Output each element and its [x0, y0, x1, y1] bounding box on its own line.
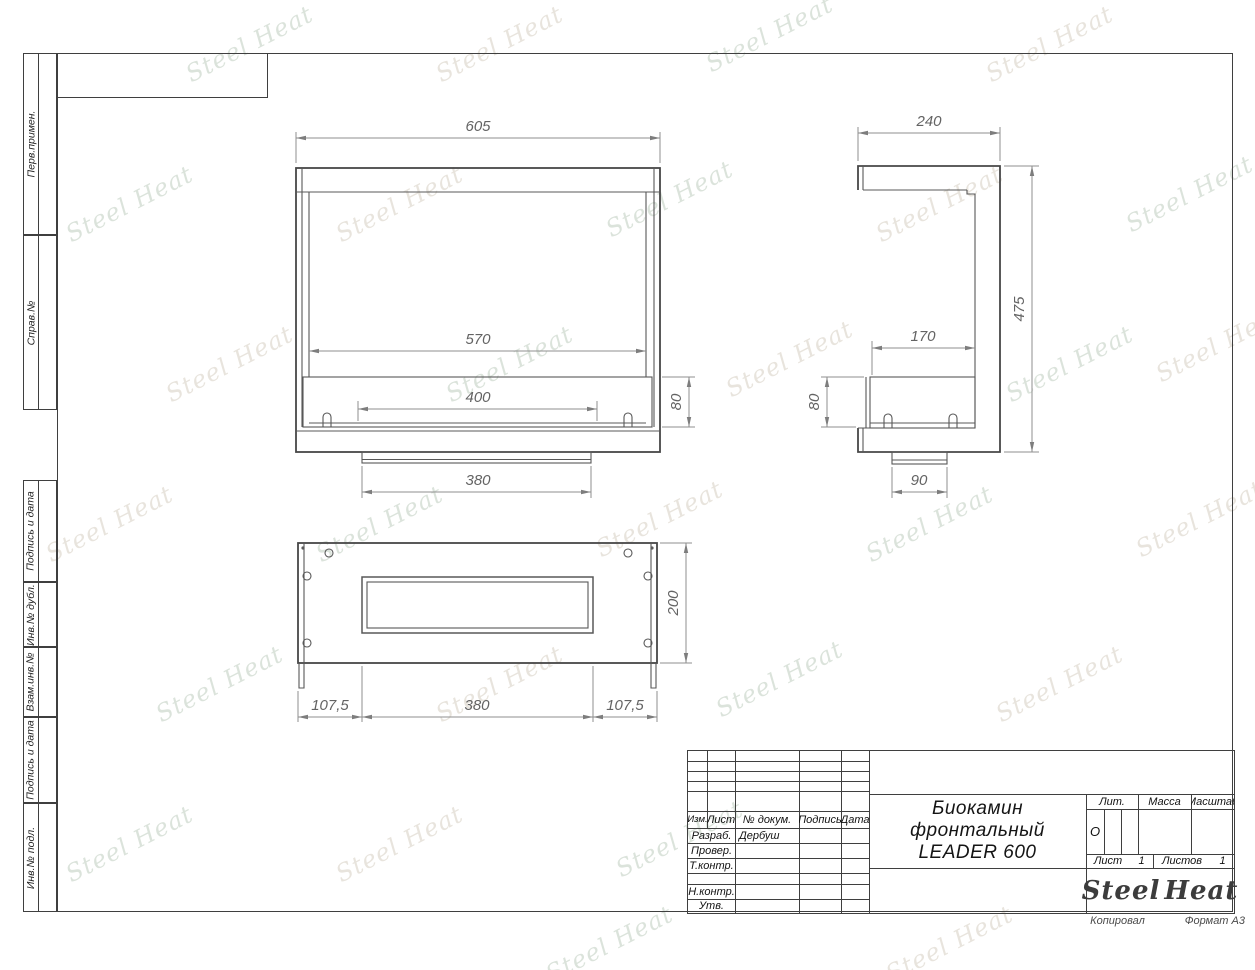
- strip-box-podpis-data-1: Подпись и дата: [23, 480, 57, 582]
- strip-label: Взам.инв.№: [25, 652, 37, 711]
- strip-box-inv-dubl: Инв.№ дубл.: [23, 582, 57, 647]
- grid-line: [688, 873, 869, 874]
- strip-divider: [38, 648, 39, 716]
- strip-box-perv-primen: Перв.примен.: [23, 53, 57, 235]
- row-tkontr-label: Т.контр.: [688, 858, 735, 873]
- row-razrab-value: Дербуш: [735, 828, 803, 843]
- row-nkontr-label: Н.контр.: [688, 884, 735, 899]
- strip-label: Подпись и дата: [25, 491, 37, 570]
- row-utv-label: Утв.: [688, 899, 735, 913]
- sheets-value: 1: [1211, 854, 1234, 868]
- strip-label: Инв.№ подл.: [25, 826, 37, 888]
- drawing-sheet: Steel Heat Steel Heat Steel Heat Steel H…: [0, 0, 1255, 970]
- sheets-label: Листов: [1153, 854, 1211, 868]
- title-block: Изм. Лист № докум. Подпись Дата Разраб. …: [687, 750, 1235, 914]
- lit-label: Лит.: [1086, 794, 1138, 809]
- strip-divider: [38, 583, 39, 646]
- strip-divider: [38, 54, 39, 234]
- grid-line: [688, 791, 869, 792]
- col-doc: № докум.: [735, 811, 799, 828]
- logo-steel-text: Steel: [1082, 876, 1161, 906]
- strip-divider: [38, 481, 39, 581]
- col-list: Лист: [707, 811, 735, 828]
- top-left-box: [57, 53, 268, 98]
- strip-divider: [38, 236, 39, 409]
- lit-value: О: [1086, 809, 1104, 854]
- strip-box-podpis-data-2: Подпись и дата: [23, 717, 57, 803]
- strip-label: Подпись и дата: [25, 720, 37, 799]
- grid-line: [688, 781, 869, 782]
- strip-box-inv-podl: Инв.№ подл.: [23, 803, 57, 912]
- steelheat-logo: Steel Heat: [1086, 868, 1234, 913]
- grid-line: [841, 751, 842, 913]
- grid-line: [1121, 809, 1122, 854]
- strip-divider: [38, 804, 39, 911]
- col-izm: Изм.: [688, 811, 707, 828]
- strip-divider: [38, 718, 39, 802]
- masshtab-label: Масштаб: [1191, 794, 1234, 809]
- grid-line: [688, 761, 869, 762]
- grid-line: [688, 771, 869, 772]
- row-razrab-label: Разраб.: [688, 828, 735, 843]
- grid-line: [1104, 809, 1105, 854]
- document-title: Биокамин фронтальный LEADER 600: [869, 794, 1086, 868]
- format-label: Формат А3: [1165, 915, 1245, 927]
- strip-label: Перв.примен.: [25, 111, 37, 178]
- sheet-value: 1: [1130, 854, 1153, 868]
- strip-label: Инв.№ дубл.: [25, 584, 37, 646]
- title-line-3: LEADER 600: [918, 842, 1036, 864]
- logo-heat-text: Heat: [1164, 876, 1238, 906]
- col-date: Дата: [841, 811, 869, 828]
- title-line-2: фронтальный: [910, 820, 1045, 842]
- row-prover-label: Провер.: [688, 843, 735, 858]
- title-line-1: Биокамин: [932, 798, 1023, 820]
- col-sign: Подпись: [799, 811, 841, 828]
- strip-label: Справ.№: [25, 300, 37, 345]
- sheet-label: Лист: [1086, 854, 1130, 868]
- massa-label: Масса: [1138, 794, 1191, 809]
- strip-box-sprav-n: Справ.№: [23, 235, 57, 410]
- copied-label: Копировал: [1065, 915, 1170, 927]
- strip-box-vzam-inv: Взам.инв.№: [23, 647, 57, 717]
- grid-line: [1086, 809, 1234, 810]
